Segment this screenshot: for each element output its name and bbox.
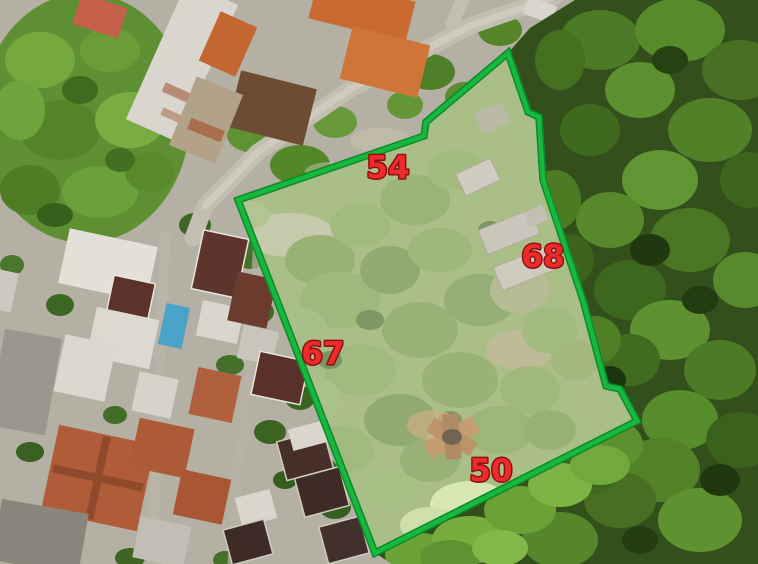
aerial-photo: 54 68 67 50 [0, 0, 758, 564]
measurement-label-right: 68 [521, 239, 564, 275]
measurement-label-top: 54 [366, 150, 409, 186]
measurement-label-left: 67 [301, 336, 344, 372]
measurement-label-bottom: 50 [469, 453, 512, 489]
